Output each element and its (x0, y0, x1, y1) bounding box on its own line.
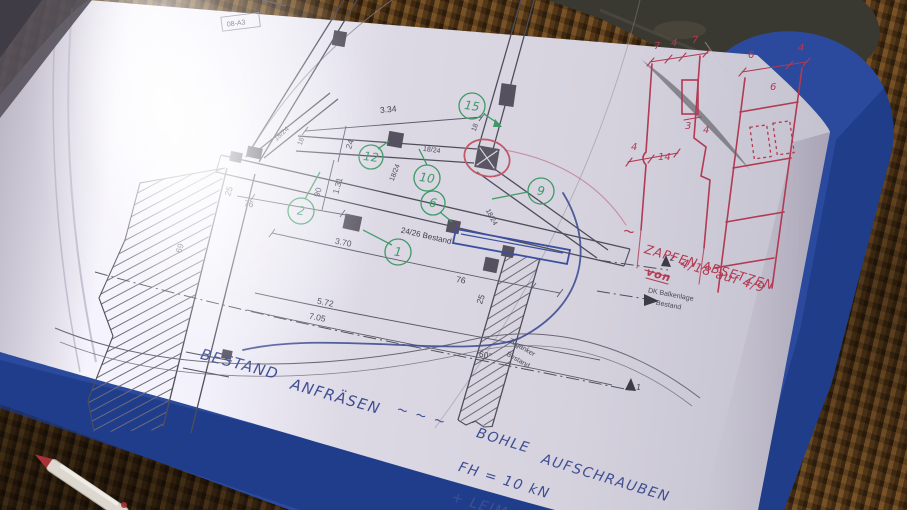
callout-10: 10 (418, 170, 435, 186)
red-dim-3: 3 (685, 121, 691, 132)
red-dim-4c: 4 (631, 142, 637, 153)
red-dim-6a: 6 (748, 50, 754, 61)
red-dim-6b: 6 (770, 82, 776, 93)
pen-red-dot (121, 502, 127, 508)
red-dim-4d: 4 (798, 43, 804, 54)
pen (32, 449, 131, 510)
photo-scene: 08-A3 24/26 Bestand (0, 0, 907, 510)
scene-canvas: 08-A3 24/26 Bestand (0, 0, 907, 510)
red-dim-14: 14 (658, 152, 671, 163)
red-dim-4b: 4 (703, 125, 709, 136)
callout-15: 15 (463, 98, 480, 114)
red-dim-4a: 4 (671, 38, 677, 49)
red-dim-7a: 7 (654, 41, 661, 52)
red-dim-7b: 7 (692, 35, 699, 46)
